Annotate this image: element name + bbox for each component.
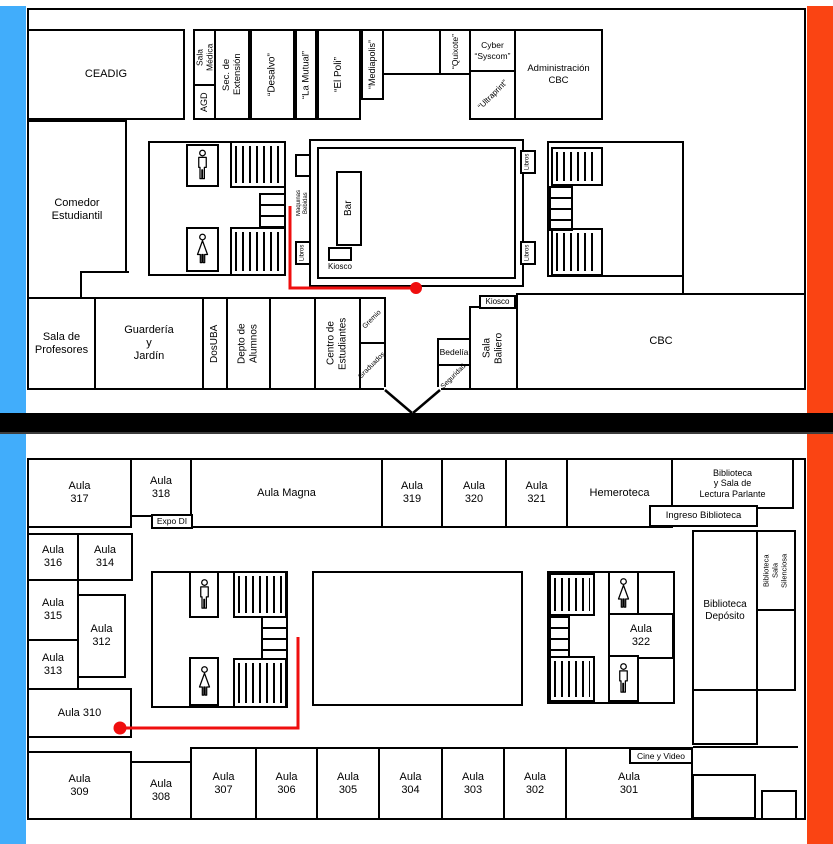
room-ceadig: CEADIG bbox=[27, 29, 185, 120]
kiosco-bar-box bbox=[328, 247, 352, 261]
stairs-lower-right-bottom bbox=[549, 656, 595, 702]
stairs-lower-center-top bbox=[233, 571, 287, 618]
room-aula-317: Aula 317 bbox=[27, 458, 132, 528]
room-aula-308: Aula 308 bbox=[130, 761, 192, 820]
womens-restroom-lower-right bbox=[608, 571, 639, 617]
room-sala-medica: Sala Médica bbox=[193, 29, 216, 86]
room-aula-magna: Aula Magna bbox=[190, 458, 383, 528]
room-expo-di: Expo DI bbox=[151, 514, 193, 529]
room-aula-314: Aula 314 bbox=[77, 533, 133, 581]
room-aula-320: Aula 320 bbox=[441, 458, 507, 528]
room-centro-de-estudiantes: Centro de Estudiantes bbox=[314, 297, 361, 390]
label: Gremio bbox=[361, 309, 383, 331]
room-quixote: “Quixote” bbox=[439, 29, 471, 75]
room-cbc: CBC bbox=[516, 293, 806, 390]
room-biblioteca-deposito: Biblioteca Depósito bbox=[692, 530, 758, 691]
room-mediapolis: “Mediapolis” bbox=[361, 29, 384, 100]
room-cyber-syscom: Cyber “Syscom” bbox=[469, 29, 516, 72]
label: “Ultraprint” bbox=[476, 78, 509, 111]
room-gremio: Gremio bbox=[359, 297, 386, 344]
stairs-upper-left-top bbox=[230, 141, 286, 188]
maquinas-bebidas-box bbox=[295, 154, 311, 177]
libros-stand-left: Libros bbox=[295, 241, 311, 265]
entrance-funnel-left bbox=[385, 390, 412, 413]
room-cine-y-video: Cine y Video bbox=[629, 748, 693, 764]
room-unlabeled-1 bbox=[382, 29, 441, 75]
room-biblioteca-lectura-parlante: Biblioteca y Sala de Lectura Parlante bbox=[671, 458, 794, 509]
room-aula-310: Aula 310 bbox=[27, 688, 132, 738]
room-el-poli: “El Poli” bbox=[317, 29, 361, 120]
label: Seguridad bbox=[440, 363, 468, 391]
room-bedelia: Bedelía bbox=[437, 338, 471, 366]
maquinas-bebidas-label: Maquinas Bebidas bbox=[291, 178, 315, 228]
stairs-upper-left-bottom bbox=[230, 227, 286, 276]
room-unlabeled-5 bbox=[692, 774, 756, 819]
stairs-lower-right-top bbox=[549, 573, 595, 616]
room-unlabeled-2 bbox=[269, 297, 316, 390]
room-unlabeled-3 bbox=[756, 609, 796, 691]
room-kiosco-cbc: Kiosco bbox=[479, 295, 516, 309]
entrance-funnel-right bbox=[413, 390, 440, 413]
floor-plan-canvas: CEADIG Sala Médica AGD Sec. de Extensión… bbox=[0, 0, 833, 844]
stairs-lower-center-bottom bbox=[233, 658, 287, 708]
room-aula-309: Aula 309 bbox=[27, 751, 132, 820]
kiosco-bar-label: Kiosco bbox=[318, 261, 362, 272]
room-unlabeled-4 bbox=[692, 689, 758, 745]
room-seguridad: Seguridad bbox=[437, 364, 471, 390]
room-depto-de-alumnos: Depto de Alumnos bbox=[226, 297, 271, 390]
room-sala-baliero: Sala Baliero bbox=[469, 306, 518, 390]
steps-upper-right bbox=[549, 186, 573, 231]
room-aula-302: Aula 302 bbox=[503, 747, 567, 820]
mens-restroom-lower-right bbox=[608, 655, 639, 702]
wall-segment-lower-right bbox=[693, 746, 798, 748]
room-aula-307: Aula 307 bbox=[190, 747, 257, 820]
room-aula-319: Aula 319 bbox=[381, 458, 443, 528]
room-aula-312: Aula 312 bbox=[77, 594, 126, 678]
comedor-notch bbox=[80, 271, 129, 299]
room-graduados: Graduados bbox=[359, 342, 386, 390]
room-dosuba: DosUBA bbox=[202, 297, 228, 390]
stairs-upper-right-top bbox=[551, 147, 603, 186]
room-agd: AGD bbox=[193, 84, 216, 120]
room-sec-de-extension: Sec. de Extensión bbox=[214, 29, 250, 120]
stairs-upper-right-bottom bbox=[551, 228, 603, 276]
male-wc-icon bbox=[197, 578, 212, 612]
room-guarderia-y-jardin: Guardería y Jardín bbox=[94, 297, 204, 390]
mens-restroom-lower bbox=[189, 571, 219, 618]
steps-lower-center bbox=[261, 616, 288, 660]
room-unlabeled-hall bbox=[312, 571, 523, 706]
room-aula-318: Aula 318 bbox=[130, 458, 192, 517]
room-aula-316: Aula 316 bbox=[27, 533, 79, 581]
mens-restroom-upper bbox=[186, 144, 219, 187]
room-administracion-cbc: Administración CBC bbox=[514, 29, 603, 120]
room-aula-321: Aula 321 bbox=[505, 458, 568, 528]
room-ultraprint: “Ultraprint” bbox=[469, 70, 516, 120]
room-ingreso-biblioteca: Ingreso Biblioteca bbox=[649, 505, 758, 527]
room-bar: Bar bbox=[336, 171, 362, 246]
room-aula-322: Aula 322 bbox=[608, 613, 674, 659]
floor-divider-band bbox=[0, 413, 833, 434]
room-aula-303: Aula 303 bbox=[441, 747, 505, 820]
female-wc-icon bbox=[616, 577, 631, 611]
womens-restroom-lower bbox=[189, 657, 219, 706]
room-aula-315: Aula 315 bbox=[27, 579, 79, 641]
room-aula-306: Aula 306 bbox=[255, 747, 318, 820]
room-unlabeled-6 bbox=[761, 790, 797, 820]
libros-stand-right-top: Libros bbox=[520, 150, 536, 174]
steps-lower-right bbox=[549, 616, 570, 658]
room-aula-313: Aula 313 bbox=[27, 639, 79, 691]
womens-restroom-upper bbox=[186, 227, 219, 272]
room-aula-304: Aula 304 bbox=[378, 747, 443, 820]
male-wc-icon bbox=[195, 149, 210, 182]
room-aula-305: Aula 305 bbox=[316, 747, 380, 820]
female-wc-icon bbox=[195, 233, 210, 266]
entrance-gap bbox=[384, 387, 441, 392]
room-sala-de-profesores: Sala de Profesores bbox=[27, 297, 96, 390]
male-wc-icon bbox=[616, 662, 631, 696]
steps-upper-left bbox=[259, 193, 286, 229]
label: Graduados bbox=[357, 351, 387, 381]
female-wc-icon bbox=[197, 665, 212, 699]
room-biblioteca-sala-silenciosa: Biblioteca Sala Silenciosa bbox=[756, 530, 796, 611]
wall-segment-cbc bbox=[682, 275, 684, 295]
room-desalvo: “Desalvo” bbox=[250, 29, 295, 120]
room-la-mutual: “La Mutual” bbox=[295, 29, 317, 120]
libros-stand-right-bottom: Libros bbox=[520, 241, 536, 265]
